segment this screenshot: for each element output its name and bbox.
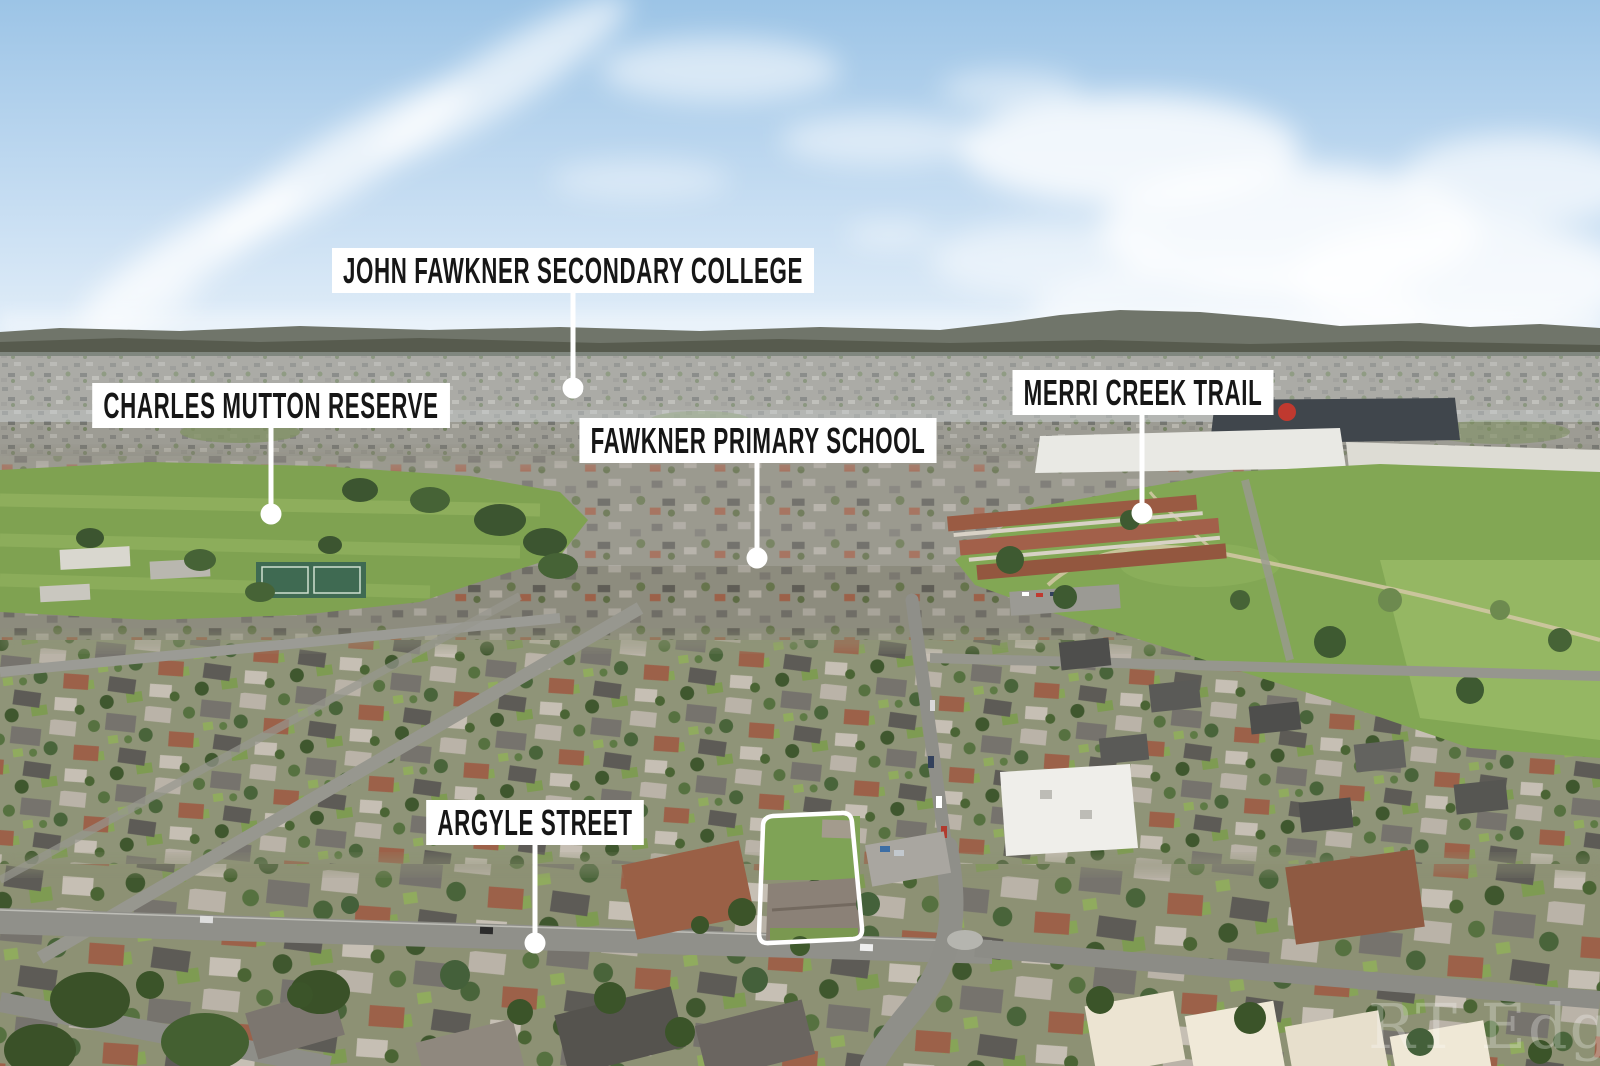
label-john-fawkner-secondary-college: JOHN FAWKNER SECONDARY COLLEGE (332, 248, 814, 293)
label-merri-creek-trail: MERRI CREEK TRAIL (1012, 370, 1273, 415)
location-marker-charles-mutton (261, 504, 282, 525)
label-text: JOHN FAWKNER SECONDARY COLLEGE (343, 253, 803, 289)
label-argyle-street: ARGYLE STREET (426, 800, 644, 845)
callout-stem-argyle-street (533, 843, 538, 943)
location-marker-argyle-street (525, 933, 546, 954)
label-text: CHARLES MUTTON RESERVE (103, 388, 438, 424)
aerial-photo-stage: JOHN FAWKNER SECONDARY COLLEGE CHARLES M… (0, 0, 1600, 1066)
watermark-text: RT Edgar (1368, 990, 1600, 1063)
label-charles-mutton-reserve: CHARLES MUTTON RESERVE (92, 383, 450, 428)
callout-stem-john-fawkner (571, 290, 576, 388)
location-marker-john-fawkner (563, 378, 584, 399)
callout-stem-merri-creek (1140, 413, 1145, 513)
label-fawkner-primary-school: FAWKNER PRIMARY SCHOOL (579, 418, 936, 463)
agency-watermark: RT Edgar (1368, 990, 1600, 1063)
aerial-photo (0, 0, 1600, 1066)
label-text: FAWKNER PRIMARY SCHOOL (591, 423, 926, 459)
callout-stem-charles-mutton (269, 424, 274, 514)
location-marker-merri-creek (1132, 503, 1153, 524)
label-text: MERRI CREEK TRAIL (1024, 375, 1263, 411)
callout-stem-fawkner-primary (755, 459, 760, 558)
location-marker-fawkner-primary (747, 548, 768, 569)
label-text: ARGYLE STREET (437, 805, 632, 841)
